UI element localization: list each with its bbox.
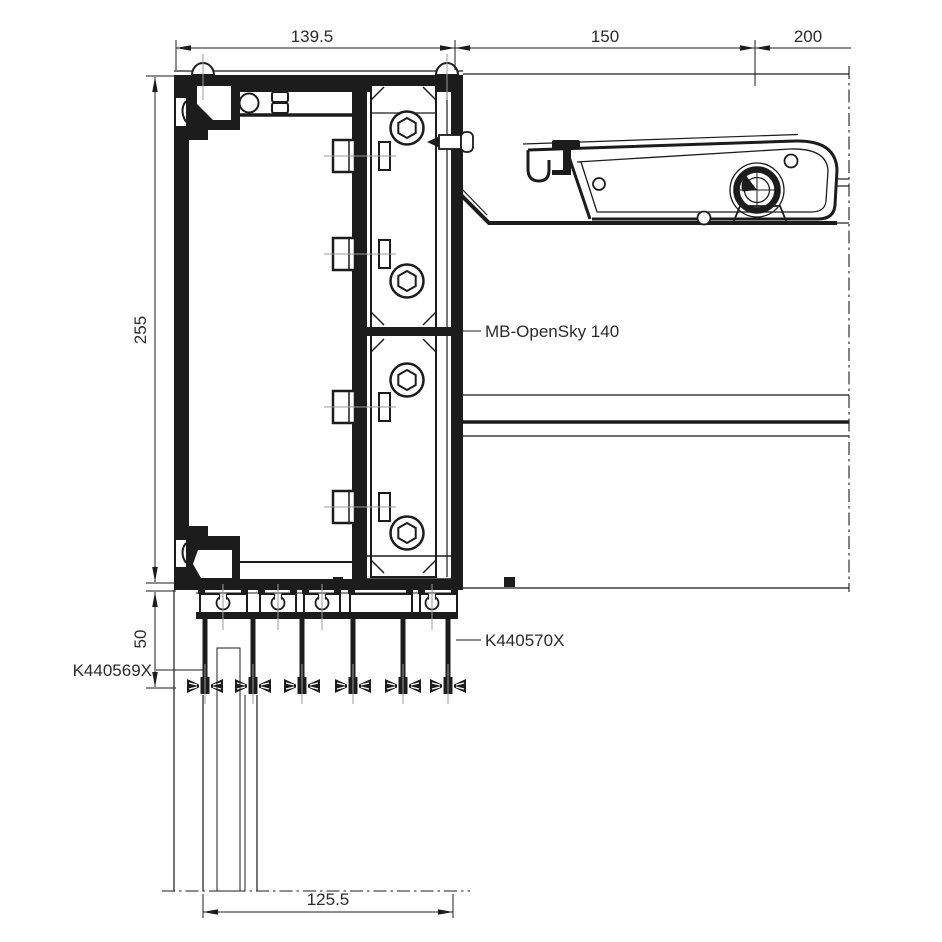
label-gasket: K440569X (73, 661, 203, 680)
label-text-gasket: K440569X (73, 661, 152, 680)
profile-splice (352, 327, 463, 336)
dim-text-roof-mid: 150 (591, 27, 619, 46)
technical-drawing-canvas: 139.5 150 200 255 50 125.5 (0, 0, 942, 942)
technical-drawing-page: 139.5 150 200 255 50 125.5 (0, 0, 942, 942)
flashing-hook (528, 150, 549, 181)
dimension-glazing-width: 125.5 (203, 890, 453, 918)
dimension-frame-height: 255 (131, 76, 176, 583)
dim-text-frame-height: 255 (131, 316, 150, 344)
clip-block (272, 103, 288, 113)
label-system-name: MB-OpenSky 140 (463, 322, 619, 341)
setting-block (504, 577, 515, 587)
glazing-unit (174, 590, 257, 891)
label-text-lower-profile: K440570X (485, 631, 564, 650)
fixing-clip (552, 140, 580, 149)
label-text-system-name: MB-OpenSky 140 (485, 322, 619, 341)
hex-socket-bolt (391, 364, 424, 397)
label-lower-profile: K440570X (456, 631, 564, 650)
dim-text-glazing-width: 125.5 (307, 890, 350, 909)
dim-text-roof-right: 200 (794, 27, 822, 46)
lower-adapter-profile (187, 588, 466, 694)
dim-text-frame-width: 139.5 (291, 27, 334, 46)
hex-socket-bolt (391, 265, 424, 298)
fixing-hole (240, 94, 259, 113)
screw-port-hole (593, 178, 605, 190)
support-stud (333, 577, 343, 587)
roof-sash-profile (523, 135, 849, 225)
hex-socket-bolt (391, 112, 424, 145)
screw-port-hole (785, 155, 798, 168)
dimensions: 139.5 150 200 255 50 125.5 (131, 27, 851, 918)
clip-block (272, 92, 288, 102)
dimension-roof-right-span: 200 (755, 27, 851, 48)
roof-glazing-panel (463, 395, 849, 588)
dim-text-lower-offset: 50 (131, 630, 150, 649)
screw-port-hole (698, 212, 711, 225)
dimension-roof-mid-span: 150 (455, 27, 755, 86)
dimension-frame-width: 139.5 (176, 27, 455, 70)
hex-socket-bolt (391, 517, 424, 550)
